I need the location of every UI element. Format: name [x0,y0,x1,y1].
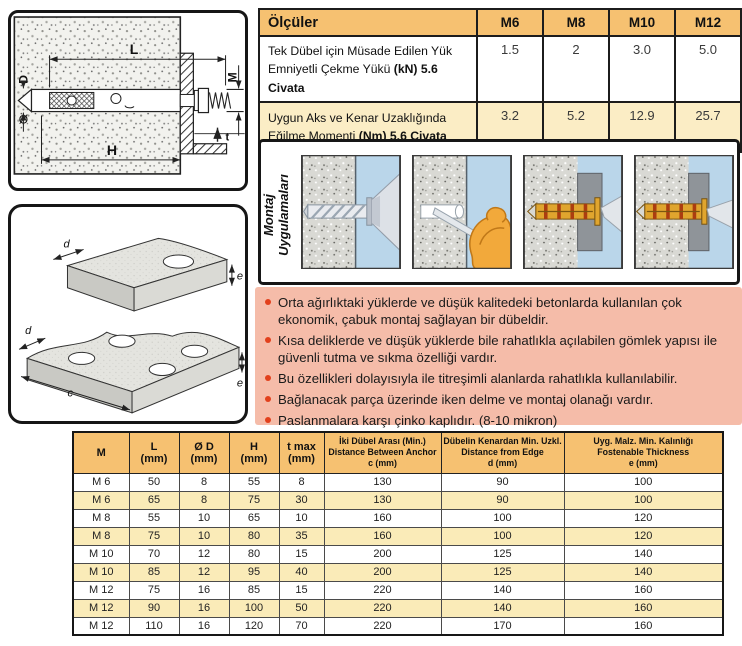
dim-label-d: d [63,238,70,250]
dims-cell: 100 [441,509,564,527]
features-box: Orta ağırlıktaki yüklerde ve düşük kalit… [255,287,742,425]
top-plate [67,238,226,311]
specs-col-m12: M12 [675,9,741,36]
bullet-icon [265,396,271,402]
bullet-icon [265,375,271,381]
dims-cell: 130 [324,491,441,509]
specs-row-tensile: Tek Dübel için Müsade Edilen Yük Emniyet… [259,36,741,102]
dims-row: M 875108035160100120 [73,527,723,545]
dims-cell: 85 [129,563,179,581]
feature-item: Kısa deliklerde ve düşük yüklerde bile r… [265,332,734,366]
dims-row: M 650855813090100 [73,473,723,491]
specs-col-m10: M10 [609,9,675,36]
dims-row: M 1085129540200125140 [73,563,723,581]
dims-cell: 75 [229,491,279,509]
feature-item: Orta ağırlıktaki yüklerde ve düşük kalit… [265,294,734,328]
dims-cell: 120 [564,527,723,545]
dims-cell: M 10 [73,563,129,581]
tighten-anchor-illustration [634,155,734,269]
dims-header-cell: t max(mm) [279,432,324,473]
dims-cell: 160 [564,581,723,599]
feature-text: Bu özellikleri dolayısıyla ile titreşiml… [278,370,677,387]
dims-cell: 130 [324,473,441,491]
dim-label-c: c [67,388,73,400]
dims-cell: 140 [441,599,564,617]
dims-row: M 1275168515220140160 [73,581,723,599]
dims-row: M 6658753013090100 [73,491,723,509]
dims-cell: 40 [279,563,324,581]
bottom-plate-dim-d: d [19,325,45,349]
dims-cell: 16 [179,599,229,617]
dims-cell: 50 [129,473,179,491]
dims-cell: 90 [129,599,179,617]
dim-label-D: D [16,75,30,84]
dims-cell: 55 [129,509,179,527]
dims-cell: 10 [179,527,229,545]
dims-cell: 125 [441,563,564,581]
dimensions-table: ML(mm)Ø D(mm)H(mm)t max(mm)İki Dübel Ara… [72,431,724,636]
montaj-step-tighten [634,155,734,269]
specs-value: 3.0 [609,36,675,102]
top-plate-dim-e: e [232,265,243,286]
dims-cell: 70 [129,545,179,563]
dims-cell: 220 [324,581,441,599]
specs-table: Ölçüler M6 M8 M10 M12 Tek Dübel için Müs… [258,8,742,153]
dims-cell: 12 [179,563,229,581]
dims-header-cell: Uyg. Malz. Min. KalınlığıFostenable Thic… [564,432,723,473]
anchor-drawing-svg: L M D Ø H t [11,13,245,188]
dims-row: M 1070128015200125140 [73,545,723,563]
dims-header-cell: Ø D(mm) [179,432,229,473]
feature-text: Bağlanacak parça üzerinde iken delme ve … [278,391,653,408]
dims-cell: M 8 [73,527,129,545]
dims-cell: 10 [279,509,324,527]
dims-cell: 160 [324,527,441,545]
anchor-body [18,88,230,112]
anchor-section-drawing: L M D Ø H t [8,10,248,191]
montaj-step-clean [412,155,512,269]
dims-cell: M 12 [73,617,129,635]
dims-cell: 16 [179,581,229,599]
specs-col-m6: M6 [477,9,543,36]
dimension-M: M [226,65,244,135]
dims-header-row: ML(mm)Ø D(mm)H(mm)t max(mm)İki Dübel Ara… [73,432,723,473]
insert-anchor-illustration [523,155,623,269]
dims-cell: 220 [324,599,441,617]
feature-item: Paslanmalara karşı çinko kaplıdır. (8-10… [265,412,734,429]
specs-value: 5.0 [675,36,741,102]
dims-cell: 90 [441,491,564,509]
specs-col-m8: M8 [543,9,609,36]
dims-row: M 855106510160100120 [73,509,723,527]
dims-cell: 15 [279,545,324,563]
label-line1: Tek Dübel için Müsade Edilen Yük [268,44,452,58]
dims-cell: M 12 [73,581,129,599]
dims-cell: 10 [179,509,229,527]
dims-cell: 100 [564,491,723,509]
label-line1: Uygun Aks ve Kenar Uzaklığında [268,111,446,125]
feature-item: Bağlanacak parça üzerinde iken delme ve … [265,391,734,408]
dimension-t: t [194,128,244,144]
dims-cell: 30 [279,491,324,509]
dims-body: M 650855813090100M 6658753013090100M 855… [73,473,723,635]
bullet-icon [265,417,271,423]
specs-header-row: Ölçüler M6 M8 M10 M12 [259,9,741,36]
montaj-step-insert [523,155,623,269]
specs-table-section: Ölçüler M6 M8 M10 M12 Tek Dübel için Müs… [258,8,742,153]
feature-item: Bu özellikleri dolayısıyla ile titreşiml… [265,370,734,387]
dim-label-e: e [237,271,243,283]
dims-cell: 90 [441,473,564,491]
dims-header-cell: Dübelin Kenardan Min. Uzkl.Distance from… [441,432,564,473]
dims-row: M 12901610050220140160 [73,599,723,617]
dims-cell: 160 [564,617,723,635]
specs-title: Ölçüler [259,9,477,36]
dims-cell: 75 [129,527,179,545]
dims-cell: 200 [324,545,441,563]
dims-cell: 75 [129,581,179,599]
dims-cell: 220 [324,617,441,635]
dims-cell: 85 [229,581,279,599]
bullet-icon [265,299,271,305]
dims-cell: 125 [441,545,564,563]
catalog-page: L M D Ø H t [0,0,742,646]
plates-drawing-svg: d e d c [11,207,245,421]
dims-cell: 160 [324,509,441,527]
dims-cell: 65 [129,491,179,509]
dim-label-e: e [237,378,243,390]
dims-cell: M 12 [73,599,129,617]
feature-text: Kısa deliklerde ve düşük yüklerde bile r… [278,332,734,366]
dims-cell: 8 [179,491,229,509]
montaj-label-line1: Montaj [261,194,276,236]
dims-cell: 15 [279,581,324,599]
montaj-section: Montaj Uygulamaları [258,139,740,285]
dimensions-table-section: ML(mm)Ø D(mm)H(mm)t max(mm)İki Dübel Ara… [72,431,724,636]
dims-cell: 140 [564,563,723,581]
specs-row-label: Tek Dübel için Müsade Edilen Yük Emniyet… [259,36,477,102]
dims-cell: 50 [279,599,324,617]
dims-cell: 100 [564,473,723,491]
bottom-plate [27,332,239,413]
dims-cell: 16 [179,617,229,635]
drill-illustration [301,155,401,269]
dims-header-cell: H(mm) [229,432,279,473]
specs-value: 1.5 [477,36,543,102]
blower-illustration [412,155,512,269]
bullet-icon [265,337,271,343]
dims-cell: 8 [179,473,229,491]
dim-label-M: M [226,72,240,82]
dims-cell: 200 [324,563,441,581]
specs-value: 2 [543,36,609,102]
dims-cell: 110 [129,617,179,635]
dims-cell: M 6 [73,473,129,491]
dims-cell: 95 [229,563,279,581]
dims-cell: 120 [229,617,279,635]
dims-cell: 100 [229,599,279,617]
dims-cell: 100 [441,527,564,545]
dims-cell: 55 [229,473,279,491]
montaj-label: Montaj Uygulamaları [261,148,301,282]
fixture-plates-drawing: d e d c [8,204,248,424]
dim-label-L: L [130,41,139,57]
dims-cell: 8 [279,473,324,491]
dims-cell: 70 [279,617,324,635]
dims-header-cell: İki Dübel Arası (Min.)Distance Between A… [324,432,441,473]
top-plate-dim-d: d [53,238,83,259]
dims-header-cell: L(mm) [129,432,179,473]
features-list: Orta ağırlıktaki yüklerde ve düşük kalit… [265,294,734,429]
dims-row: M 121101612070220170160 [73,617,723,635]
dims-header-cell: M [73,432,129,473]
dims-cell: 170 [441,617,564,635]
dims-cell: M 8 [73,509,129,527]
montaj-label-line2: Uygulamaları [276,174,291,256]
feature-text: Orta ağırlıktaki yüklerde ve düşük kalit… [278,294,734,328]
dims-cell: 80 [229,545,279,563]
dim-label-d: d [25,325,32,337]
label-line2: Emniyetli Çekme Yükü [268,62,394,76]
dims-cell: M 10 [73,545,129,563]
dims-cell: 120 [564,509,723,527]
montaj-step-drill [301,155,401,269]
feature-text: Paslanmalara karşı çinko kaplıdır. (8-10… [278,412,557,429]
dims-cell: 140 [441,581,564,599]
dims-cell: 80 [229,527,279,545]
dims-cell: 35 [279,527,324,545]
dims-cell: M 6 [73,491,129,509]
dims-cell: 140 [564,545,723,563]
dims-cell: 160 [564,599,723,617]
dims-cell: 12 [179,545,229,563]
dim-label-H: H [107,142,117,158]
dims-cell: 65 [229,509,279,527]
